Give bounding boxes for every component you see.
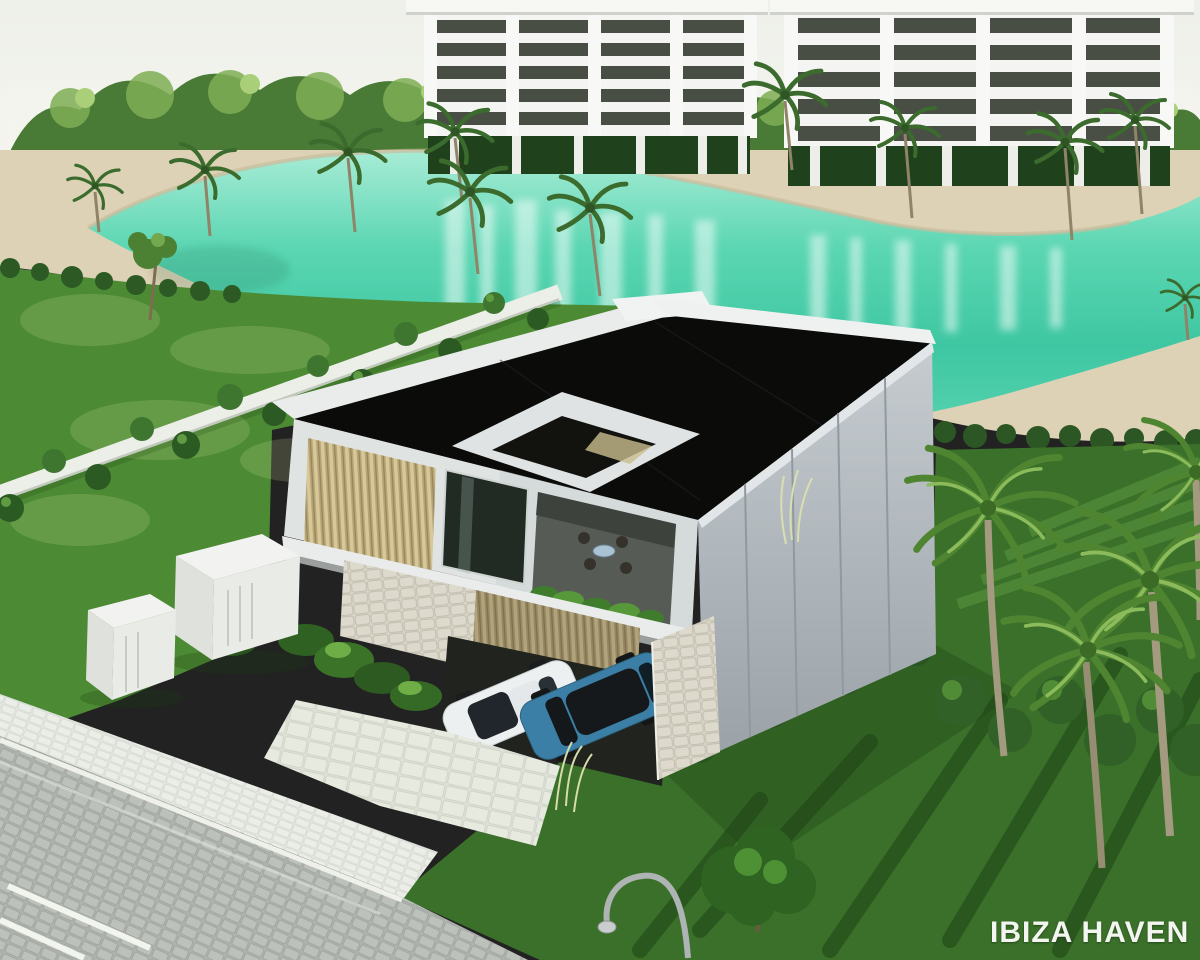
stone-column [652, 616, 720, 780]
roof-canopy [770, 0, 1194, 12]
facade-window [442, 470, 528, 584]
roof-canopy [406, 0, 768, 12]
utility-box-small [80, 594, 184, 708]
lamp-head [598, 921, 616, 933]
apartment-building-right [770, 0, 1194, 186]
architectural-render: IBIZA HAVEN [0, 0, 1200, 960]
watermark: IBIZA HAVEN [990, 916, 1200, 950]
apartment-building-left [406, 0, 768, 174]
render-scene [0, 0, 1200, 960]
terrace-table [593, 545, 615, 557]
pilotis-shade [788, 146, 1170, 186]
